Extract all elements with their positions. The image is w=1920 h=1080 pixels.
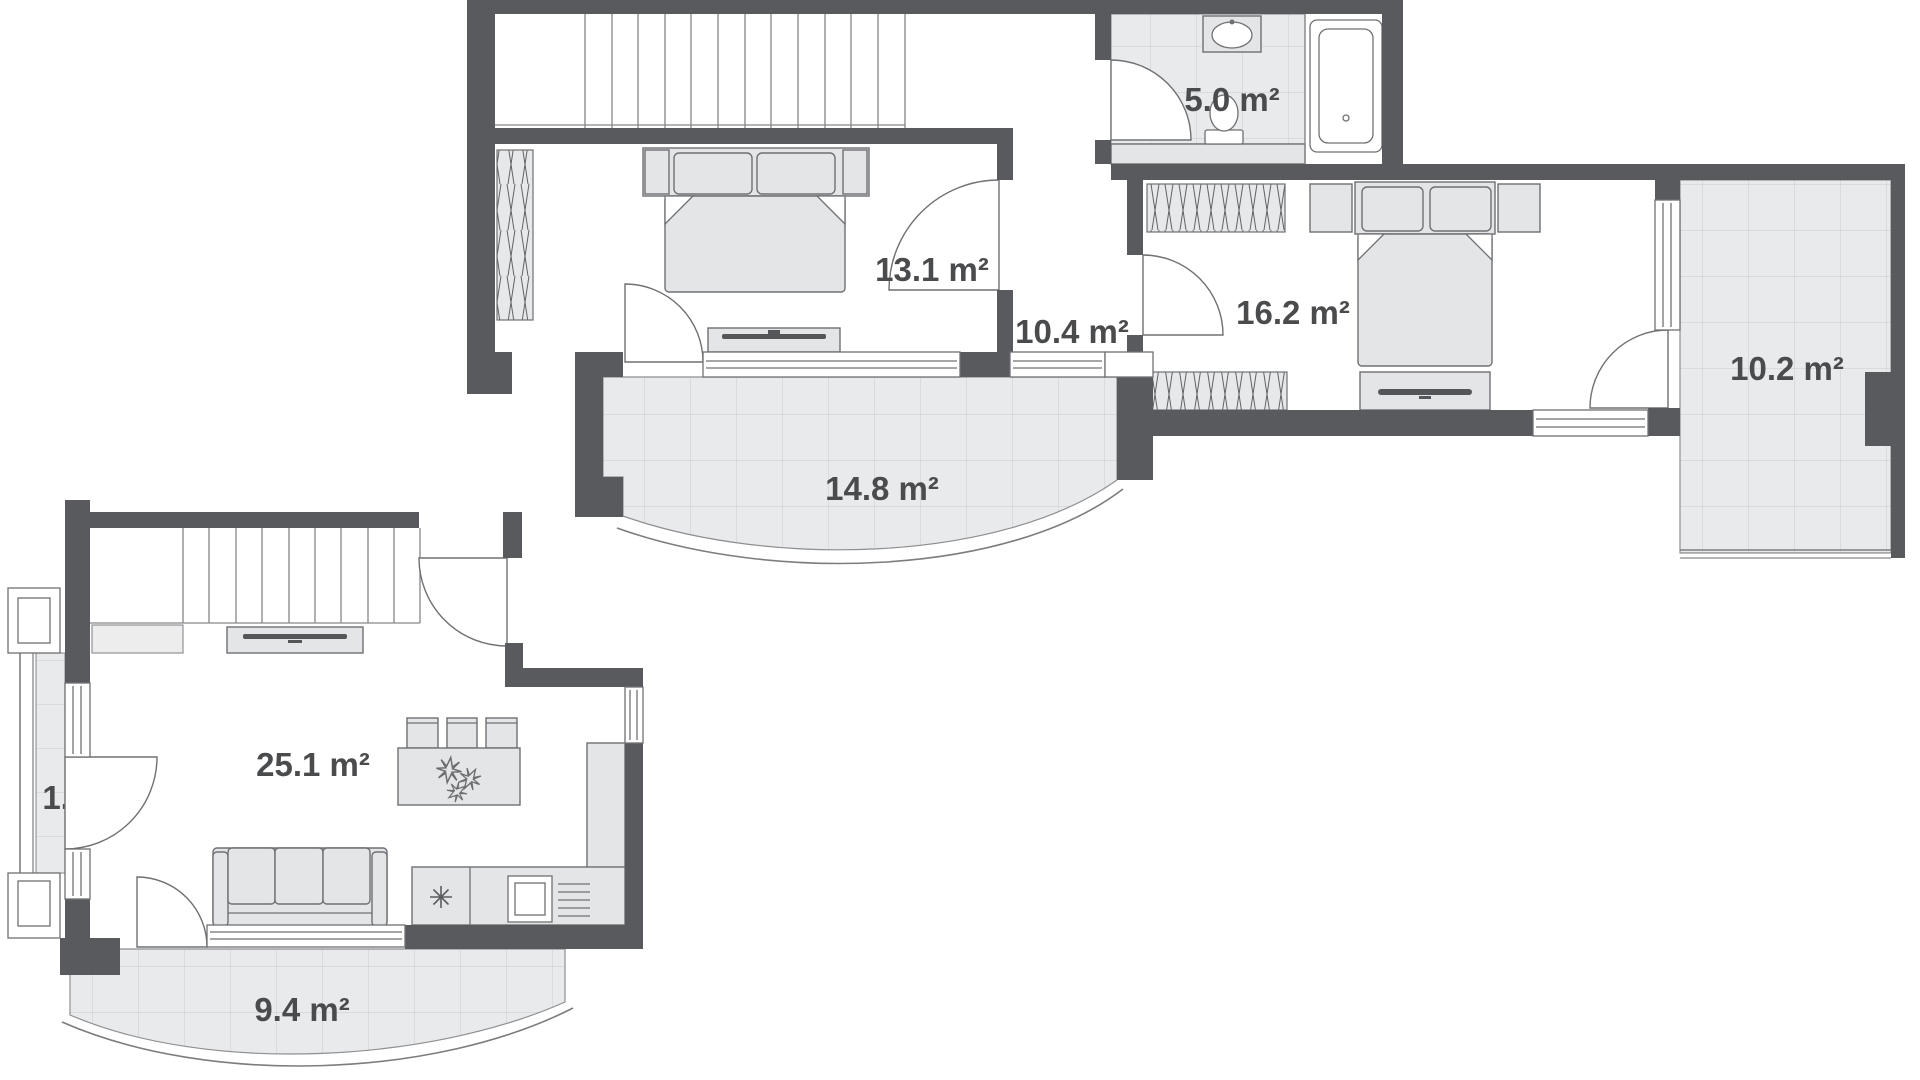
bathroom-shelf [1111,144,1305,164]
balcony-floor [603,377,1117,550]
stair-treads [585,14,905,128]
door-swing [1143,255,1223,335]
room-area-label: 14.8 m² [825,470,939,507]
room-living: 25.1 m² [65,558,625,947]
room-bedroom-16: 16.2 m² [1143,182,1668,410]
window [65,683,90,757]
dresser-tv [708,328,840,352]
window-post [1105,352,1153,377]
window [1533,410,1648,436]
room-area-label: 13.1 m² [875,251,989,288]
room-area-label: 25.1 m² [256,746,370,783]
double-bed [643,148,869,292]
room-area-label: 5.0 m² [1184,81,1279,118]
wardrobe [497,150,533,320]
dresser-tv [1360,372,1490,410]
floor-plan-canvas: 14.8 m² 10.2 m² [0,0,1920,1080]
floor-plan: 14.8 m² 10.2 m² [0,0,1920,1080]
cabinet-tv [227,627,363,653]
window [703,352,960,377]
door-swing [65,757,157,849]
window [207,925,405,947]
door-swing [1590,330,1668,408]
tv-icon [243,634,347,639]
tv-icon [722,334,826,339]
dining-set [398,718,520,806]
stairs-lower [90,528,420,653]
door-swing [419,558,507,646]
balcony-right: 10.2 m² [1680,180,1891,558]
stairs-upper [495,14,905,128]
window-bay [8,588,60,653]
door-swing [625,284,703,362]
upper-floor: 14.8 m² 10.2 m² [467,0,1905,563]
window [65,849,90,899]
lower-floor: 9.4 m² 1.3 m² [8,500,643,1066]
room-hallway: 10.4 m² [1015,313,1129,350]
door-swing [137,877,207,947]
stair-landing [92,625,183,653]
window [1010,352,1105,377]
bathroom: 5.0 m² [1111,14,1382,164]
room-area-label: 10.2 m² [1730,350,1844,387]
balcony-floor [36,653,65,873]
wardrobe [1147,372,1287,410]
window [1655,200,1680,330]
wardrobe [1147,184,1285,232]
window [625,687,643,743]
double-bed [1310,182,1540,366]
room-area-label: 10.4 m² [1015,313,1129,350]
sofa [213,848,387,926]
balcony-bottom: 9.4 m² [62,949,573,1066]
room-bedroom-13: 13.1 m² [497,148,999,362]
balcony-main: 14.8 m² [603,377,1123,563]
room-area-label: 16.2 m² [1236,294,1350,331]
stair-treads [183,528,420,623]
tv-icon [1378,389,1472,395]
bathtub [1310,20,1382,152]
sink [1203,16,1261,52]
window-bay [8,873,60,938]
room-area-label: 9.4 m² [254,991,349,1028]
